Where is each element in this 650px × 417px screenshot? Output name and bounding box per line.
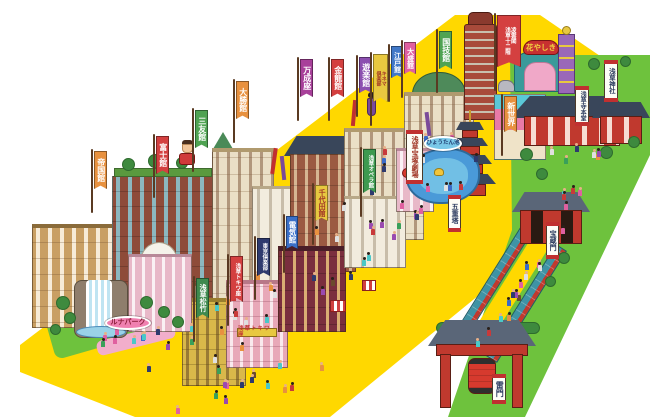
banner-pole [91,149,93,213]
sign-hanayashiki: 花やしき [523,40,559,55]
banner-pole [388,44,390,102]
plate-kaminarimon: 雷門 [492,374,506,404]
banner-kokugikan: 国技館 [439,31,452,69]
plate-asakusa-jinja: 浅草神社 [604,60,618,102]
banner-taiseikan: 大盛館 [404,42,416,74]
banner-ryounkaku: 凌雲閣 浅草十二階 [497,15,521,67]
banner-pole [436,29,438,93]
banner-pole [328,57,330,121]
banner-pole [370,52,372,126]
banner-pole [494,13,496,91]
banner-taishokan: 大勝館 [236,81,249,119]
banner-tokyo-club: 東京倶楽部 [257,238,270,276]
banner-kinema-club: キネマ 倶楽部 [373,54,388,102]
banner-pole [283,214,285,273]
banner-pole [401,40,403,98]
sign-tokiwaza-board: 浅草トキワ座 [237,328,277,337]
banner-pole [192,108,194,172]
banner-pole [297,57,299,121]
banner-pole [153,134,155,198]
banner-pole [254,236,256,300]
banner-pole [356,55,358,117]
asakusa-illustrated-map: 帝国館富士館三友館大勝館万成座金龍館遊楽館キネマ 倶楽部江戸館大盛館国技館凌雲閣… [0,0,650,417]
banner-sanyukan: 三友館 [195,110,208,148]
banner-asakusa-operakan: 浅草オペラ館 [363,149,376,193]
banner-pole [501,94,503,156]
oval-luna-park: ルナパーク [105,316,151,330]
banner-layer: 帝国館富士館三友館大勝館万成座金龍館遊楽館キネマ 倶楽部江戸館大盛館国技館凌雲閣… [0,0,650,417]
banner-pole [233,79,235,143]
banner-kinryukan: 金龍館 [331,59,344,97]
banner-pole [193,276,195,342]
banner-fujikan: 富士館 [156,136,169,174]
plate-sensoji-hondo: 浅草寺本堂 [575,86,589,126]
banner-shinsekai: 新世界 [504,96,517,132]
plate-hozomon: 宝蔵門 [546,222,559,259]
banner-asakusa-tokiwaza: 浅草トキワ座 [230,256,243,302]
oval-hyotan-ike: ひょうたん池 [424,136,462,151]
banner-teikokukan: 帝国館 [94,151,107,189]
plate-asakusa-takarazuka: 浅草宝塚劇場 [406,130,423,184]
banner-pole [227,254,229,326]
banner-asakusa-shochiku: 浅草松竹 [196,278,209,318]
banner-denkikan: 電気館 [286,216,298,249]
banner-manseiza: 万成座 [300,59,313,97]
banner-pole [360,147,362,217]
plate-gojunoto: 五重塔 [448,195,461,232]
banner-pole [312,183,314,245]
banner-chiyodakan: 千代田館 [315,185,328,221]
